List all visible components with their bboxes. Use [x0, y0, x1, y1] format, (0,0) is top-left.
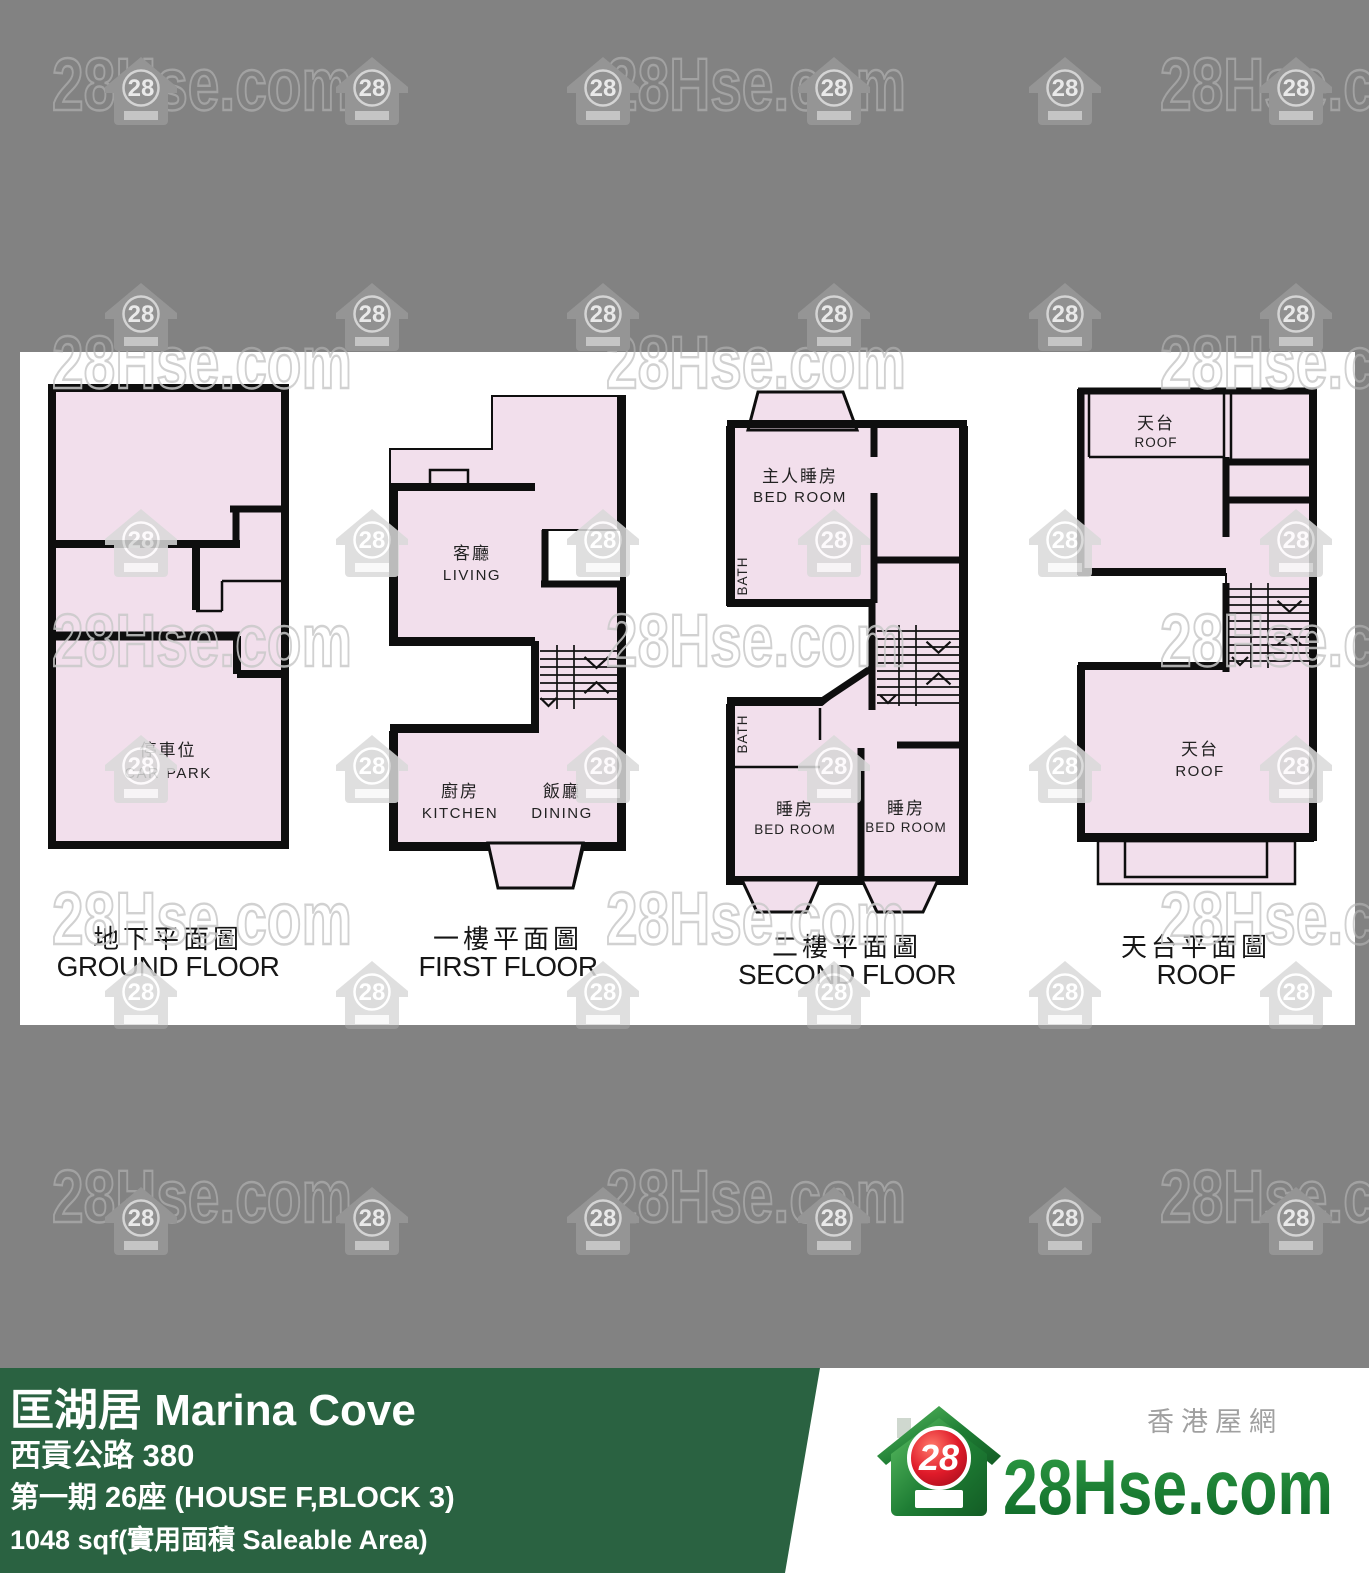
svg-text:28Hse.com: 28Hse.com — [606, 1162, 906, 1238]
watermark-text: 28Hse.com — [50, 1162, 360, 1242]
watermark-text: 28Hse.com — [1158, 1162, 1369, 1242]
svg-text:28: 28 — [1052, 301, 1079, 328]
watermark-text: 28Hse.com — [604, 50, 914, 130]
watermark-house-icon: 28 — [335, 279, 409, 353]
estate-area: 1048 sqf(實用面積 Saleable Area) — [10, 1518, 428, 1557]
svg-text:28: 28 — [1283, 75, 1310, 102]
watermark-house-icon: 28 — [1259, 53, 1333, 127]
watermark-text: 28Hse.com — [50, 50, 360, 130]
svg-text:28: 28 — [359, 75, 386, 102]
watermark-house-icon: 28 — [797, 1183, 871, 1257]
svg-text:28Hse.com: 28Hse.com — [52, 50, 352, 126]
watermark-house-icon: 28 — [104, 279, 178, 353]
svg-text:28: 28 — [1052, 1205, 1079, 1232]
svg-text:28Hse.com: 28Hse.com — [1160, 1162, 1369, 1238]
watermark-house-icon: 28 — [104, 1183, 178, 1257]
floorplan-page: { "watermark": { "site": "28Hse.com", "b… — [0, 0, 1369, 1573]
watermark-house-icon: 28 — [1028, 53, 1102, 127]
svg-text:28: 28 — [1283, 301, 1310, 328]
watermark-house-icon: 28 — [1028, 1183, 1102, 1257]
svg-text:28: 28 — [128, 75, 155, 102]
svg-text:28: 28 — [1052, 75, 1079, 102]
watermark-house-icon: 28 — [1028, 279, 1102, 353]
estate-address: 西貢公路 380 — [10, 1430, 194, 1475]
watermark-house-icon: 28 — [335, 53, 409, 127]
watermark-house-icon: 28 — [335, 1183, 409, 1257]
svg-text:28: 28 — [1283, 1205, 1310, 1232]
svg-text:28: 28 — [590, 1205, 617, 1232]
svg-text:28: 28 — [821, 1205, 848, 1232]
svg-text:28: 28 — [128, 1205, 155, 1232]
watermark-text: 28Hse.com — [604, 1162, 914, 1242]
watermark-house-icon: 28 — [566, 53, 640, 127]
brand-text: 28Hse.com — [1003, 1443, 1333, 1531]
plan-sheet — [20, 352, 1355, 1025]
svg-text:28: 28 — [590, 75, 617, 102]
footer-banner: 匡湖居 Marina Cove 西貢公路 380 第一期 26座 (HOUSE … — [0, 1368, 1369, 1573]
svg-text:28: 28 — [128, 301, 155, 328]
watermark-house-icon: 28 — [797, 279, 871, 353]
svg-text:28: 28 — [359, 1205, 386, 1232]
watermark-house-icon: 28 — [104, 53, 178, 127]
svg-text:28: 28 — [821, 75, 848, 102]
svg-text:28Hse.com: 28Hse.com — [1160, 50, 1369, 126]
watermark-house-icon: 28 — [566, 279, 640, 353]
watermark-house-icon: 28 — [1259, 1183, 1333, 1257]
svg-text:28: 28 — [590, 301, 617, 328]
svg-text:28: 28 — [359, 301, 386, 328]
svg-text:28: 28 — [821, 301, 848, 328]
logo-region: 28 香港屋網 28Hse.com — [785, 1368, 1369, 1573]
logo-tagline: 香港屋網 — [1147, 1400, 1283, 1439]
28hse-house-logo-icon: 28 — [873, 1398, 1005, 1530]
estate-block: 第一期 26座 (HOUSE F,BLOCK 3) — [10, 1474, 455, 1516]
svg-text:28Hse.com: 28Hse.com — [606, 50, 906, 126]
estate-title: 匡湖居 Marina Cove — [10, 1374, 416, 1438]
logo-badge-number: 28 — [918, 1437, 959, 1478]
28hse-brand-logo: 28Hse.com — [999, 1438, 1344, 1538]
watermark-house-icon: 28 — [566, 1183, 640, 1257]
svg-text:28Hse.com: 28Hse.com — [52, 1162, 352, 1238]
watermark-text: 28Hse.com — [1158, 50, 1369, 130]
watermark-house-icon: 28 — [1259, 279, 1333, 353]
watermark-house-icon: 28 — [797, 53, 871, 127]
